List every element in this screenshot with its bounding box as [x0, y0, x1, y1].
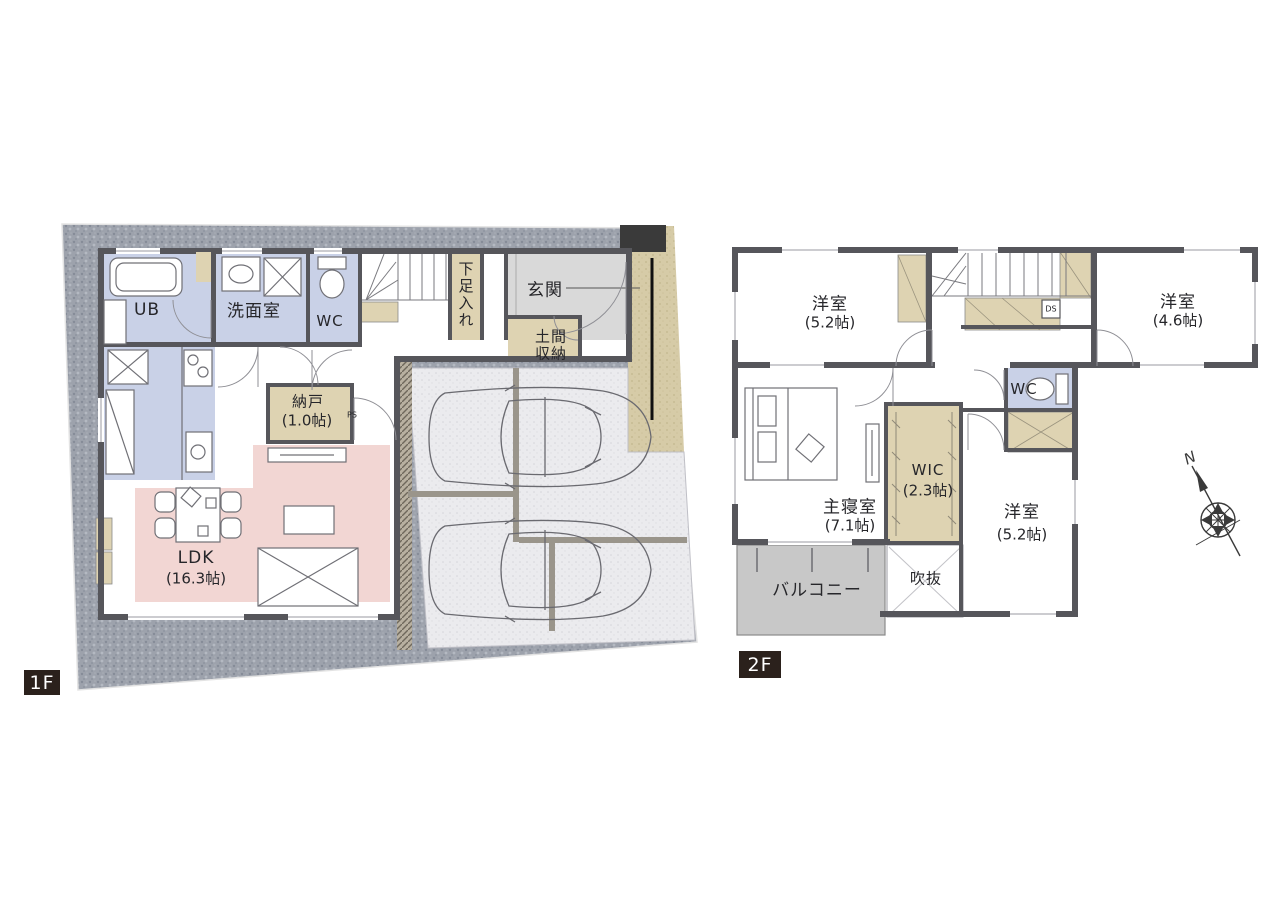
pillar-tan [196, 252, 211, 282]
label-ps: PS [347, 411, 357, 420]
label-balcony: バルコニー [772, 576, 862, 601]
label-wic-size: (2.3帖) [903, 480, 954, 501]
label-master-size: (7.1帖) [825, 515, 876, 536]
stair-landing-1f [360, 302, 398, 322]
label-wc-1f: WC [316, 312, 343, 330]
label-entrance: 玄関 [527, 276, 563, 301]
label-wic: WIC [912, 461, 945, 479]
floor-badge-2f: 2F [739, 651, 781, 678]
label-ub: UB [134, 300, 160, 320]
label-washroom: 洗面室 [227, 297, 281, 322]
label-ldk-size: (16.3帖) [166, 568, 226, 589]
label-bedroom-se-size: (5.2帖) [997, 524, 1048, 545]
floor-badge-1f: 1F [24, 670, 60, 695]
label-ldk: LDK [178, 548, 215, 568]
porch-tile [620, 225, 666, 252]
label-ds: DS [1045, 305, 1056, 314]
floorplan-canvas: UB 洗面室 WC 下足入れ 玄関 土間 収納 納戸 (1.0帖) PS LDK… [0, 0, 1280, 913]
compass-icon [1192, 466, 1240, 556]
label-void: 吹抜 [910, 568, 942, 589]
floorplan-graphics [0, 0, 1280, 913]
label-bedroom-ne-size: (4.6帖) [1153, 310, 1204, 331]
floor-1f-plan [62, 224, 697, 690]
label-wc-2f: WC [1010, 380, 1037, 398]
label-doma-2: 収納 [535, 343, 567, 364]
label-bedroom-nw-size: (5.2帖) [805, 312, 856, 333]
label-nando-size: (1.0帖) [282, 410, 333, 431]
label-nando: 納戸 [292, 391, 324, 412]
label-shoe-cabinet: 下足入れ [456, 261, 477, 329]
label-bedroom-se: 洋室 [1004, 498, 1040, 523]
approach-path [628, 226, 684, 452]
